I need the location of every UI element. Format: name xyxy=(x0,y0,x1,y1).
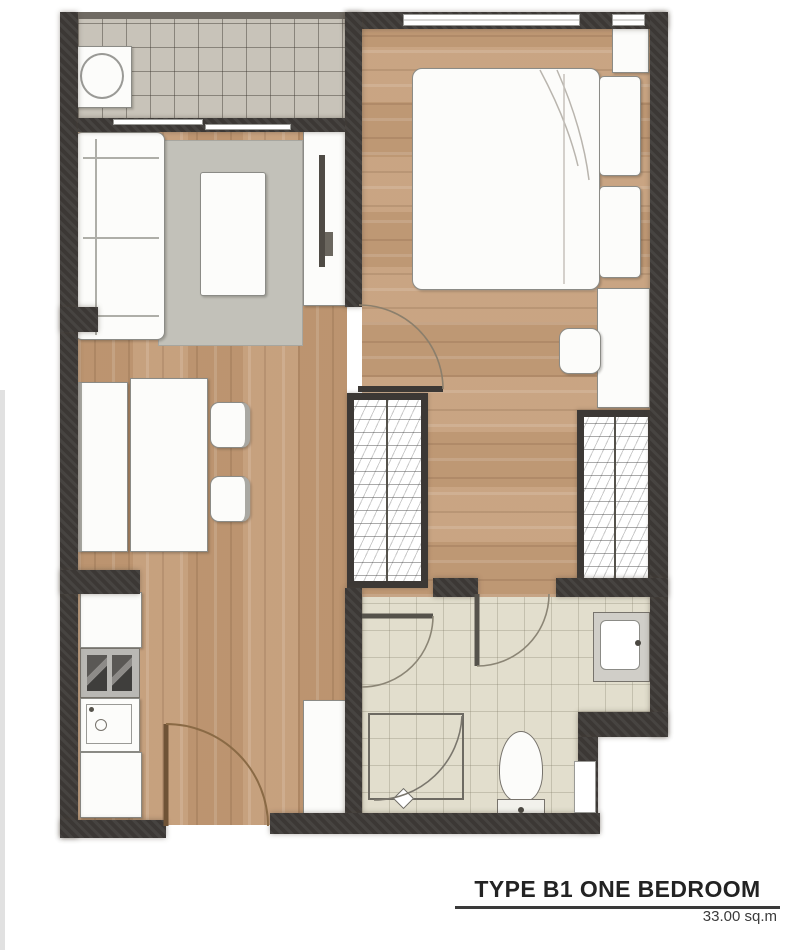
wall-bottom-bathroom xyxy=(270,813,600,834)
vanity-basin xyxy=(600,620,640,670)
tv-console xyxy=(303,128,347,306)
wall-stub-living xyxy=(60,307,98,332)
dressing-table xyxy=(597,288,650,408)
tall-cabinet xyxy=(303,700,347,822)
pillow xyxy=(599,186,641,278)
dining-table xyxy=(130,378,208,552)
bedroom-window-2 xyxy=(612,14,645,26)
washing-machine-drum xyxy=(80,53,124,99)
dining-chair xyxy=(210,476,250,522)
stove-burner xyxy=(112,655,132,691)
wall-bathroom-north-a xyxy=(433,578,478,597)
stool xyxy=(559,328,601,374)
wall-notch-horizontal xyxy=(578,712,668,737)
wardrobe-divider xyxy=(386,400,388,581)
toilet-bowl xyxy=(499,731,543,802)
wall-living-bedroom-divider xyxy=(345,12,362,307)
nightstand xyxy=(612,27,649,73)
floor-plan-canvas: TYPE B1 ONE BEDROOM 33.00 sq.m xyxy=(0,0,789,950)
sofa-armrest-line-top xyxy=(83,157,159,159)
pillow xyxy=(599,76,641,176)
stove xyxy=(80,648,140,698)
wall-right xyxy=(650,12,668,737)
exterior-notch-mask xyxy=(598,735,658,821)
balcony-rail xyxy=(60,12,357,19)
sink-faucet xyxy=(89,707,94,712)
wall-bottom-kitchen xyxy=(60,820,166,838)
bedroom-window xyxy=(403,14,580,26)
kitchen-sink xyxy=(80,698,140,752)
wardrobe-right xyxy=(577,410,655,588)
plan-title: TYPE B1 ONE BEDROOM xyxy=(455,876,780,909)
tv-bracket xyxy=(325,232,333,256)
dining-chair xyxy=(210,402,250,448)
wall-niche xyxy=(574,761,596,813)
sliding-balcony-door-panel xyxy=(113,119,203,125)
wall-bathroom-north-b xyxy=(556,578,668,597)
page-edge-artifact xyxy=(0,390,5,950)
shower-enclosure xyxy=(368,713,464,800)
wardrobe-divider xyxy=(614,417,616,581)
vanity-counter xyxy=(593,612,650,682)
vanity-faucet xyxy=(635,640,641,646)
double-bed xyxy=(412,68,600,290)
wardrobe-hangers xyxy=(584,417,648,581)
dining-bench xyxy=(78,382,128,552)
plan-area: 33.00 sq.m xyxy=(455,908,777,925)
wall-bathroom-west xyxy=(345,588,362,825)
wall-left xyxy=(60,12,78,838)
stove-burner xyxy=(87,655,107,691)
kitchen-counter-lower xyxy=(80,752,142,818)
kitchen-counter-upper xyxy=(80,592,142,648)
coffee-table xyxy=(200,172,266,296)
washing-machine xyxy=(72,46,132,108)
sofa-seat-line xyxy=(83,237,159,239)
sink-drain xyxy=(95,719,107,731)
wall-stub-kitchen xyxy=(60,570,140,594)
wardrobe-left xyxy=(347,393,428,588)
sliding-balcony-door-panel xyxy=(205,124,291,130)
